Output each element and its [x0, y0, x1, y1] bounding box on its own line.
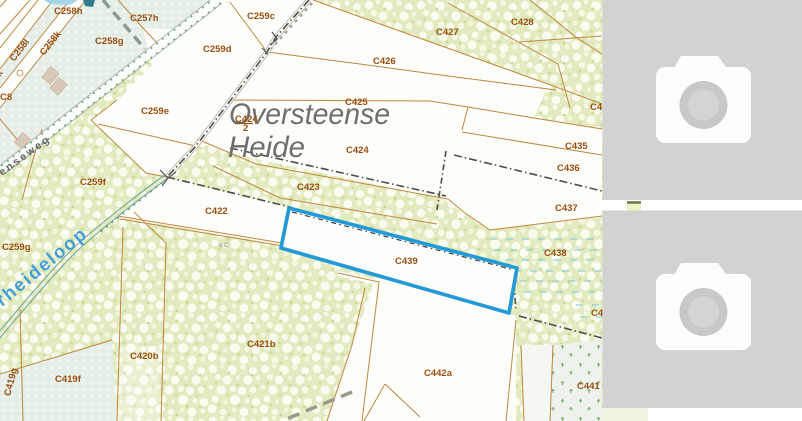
svg-text:Heide: Heide [228, 131, 305, 164]
svg-text:C8: C8 [0, 92, 12, 103]
svg-text:C422: C422 [205, 206, 228, 217]
svg-text:C259f: C259f [80, 177, 107, 188]
svg-text:C424: C424 [346, 145, 369, 156]
svg-text:C259g: C259g [2, 242, 31, 253]
svg-text:C257h: C257h [130, 13, 159, 24]
svg-text:C436: C436 [557, 163, 580, 174]
svg-text:C258h: C258h [54, 6, 83, 17]
svg-text:C421b: C421b [247, 339, 276, 350]
svg-text:C437: C437 [555, 203, 578, 214]
svg-text:C438: C438 [544, 248, 567, 259]
svg-text:C426: C426 [373, 56, 396, 67]
svg-text:C259e: C259e [141, 106, 169, 117]
svg-text:C441: C441 [577, 381, 600, 392]
svg-text:C428: C428 [511, 17, 534, 28]
svg-text:C259c: C259c [247, 11, 275, 22]
svg-text:C435: C435 [565, 141, 588, 152]
svg-text:s C: s C [219, 242, 229, 249]
svg-text:C423: C423 [297, 182, 320, 193]
svg-text:C442a: C442a [424, 368, 453, 379]
svg-text:C419f: C419f [55, 374, 82, 385]
svg-text:C259d: C259d [203, 44, 232, 55]
svg-text:C420b: C420b [130, 351, 159, 362]
svg-text:C439: C439 [395, 256, 418, 267]
svg-text:2: 2 [243, 123, 248, 134]
svg-text:C427: C427 [436, 27, 459, 38]
svg-text:C258g: C258g [95, 36, 124, 47]
